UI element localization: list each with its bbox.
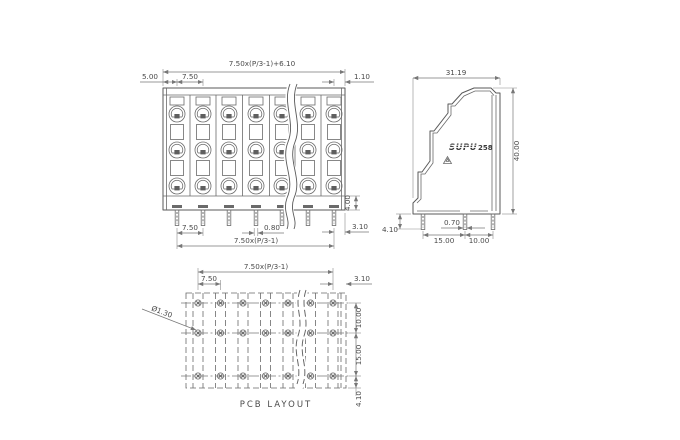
technical-drawing: 7.50x(P/3-1)+6.10 5.00 7.50 1.10 4.00 3.… (0, 0, 680, 440)
pcb-layout-view: 7.50x(P/3-1) 7.50 3.10 10.00 15.00 4.10 … (142, 262, 372, 410)
dim-pcb-pitch: 7.50 (201, 274, 217, 283)
front-pins (175, 210, 336, 226)
dim-front-pitch: 7.50 (182, 72, 198, 81)
pcb-holes (195, 300, 336, 379)
dim-side-height: 40.00 (512, 140, 521, 161)
model-number: 258 (478, 144, 493, 152)
dim-front-pin-width: 0.80 (264, 223, 280, 232)
pcb-centerlines (181, 303, 350, 376)
dim-pcb-span: 7.50x(P/3-1) (244, 262, 289, 271)
dim-side-pin-width: 0.70 (444, 218, 460, 227)
terminal-cells (169, 97, 342, 208)
triangle-mark-icon (444, 157, 452, 164)
break-line-pcb (296, 290, 306, 384)
dim-front-pin-pitch: 7.50 (182, 223, 198, 232)
brand-logo: SUPU 258 (444, 143, 493, 164)
side-view: SUPU 258 31.19 40.00 0.70 15. (382, 68, 521, 245)
pcb-layout-title: PCB LAYOUT (240, 400, 313, 410)
dim-side-pin-spacing-rear: 10.00 (469, 236, 490, 245)
dim-front-pin-right-offset: 3.10 (352, 222, 368, 231)
dim-front-top-formula: 7.50x(P/3-1)+6.10 (229, 59, 296, 68)
dim-pcb-row-gap-bottom: 15.00 (354, 344, 363, 365)
front-view: 7.50x(P/3-1)+6.10 5.00 7.50 1.10 4.00 3.… (140, 59, 374, 249)
break-line-front (285, 84, 297, 229)
dim-side-width: 31.19 (446, 68, 467, 77)
brand-text: SUPU (449, 143, 477, 153)
dim-pcb-right-offset: 3.10 (354, 274, 370, 283)
dim-front-right-offset: 1.10 (354, 72, 370, 81)
dim-front-pin-span: 7.50x(P/3-1) (234, 236, 279, 245)
dim-side-pin-spacing-front: 15.00 (434, 236, 455, 245)
dim-side-pin-length: 4.10 (382, 225, 398, 234)
pcb-channel-lines (193, 293, 338, 388)
dim-front-slot-height: 4.00 (343, 195, 352, 211)
dim-pcb-bottom-offset: 4.10 (354, 391, 363, 407)
dim-pcb-hole-diameter: Ø1.30 (150, 304, 174, 320)
drawing-page: 7.50x(P/3-1)+6.10 5.00 7.50 1.10 4.00 3.… (0, 0, 680, 440)
dim-pcb-row-gap-top: 10.00 (354, 307, 363, 328)
dim-front-left-offset: 5.00 (142, 72, 158, 81)
